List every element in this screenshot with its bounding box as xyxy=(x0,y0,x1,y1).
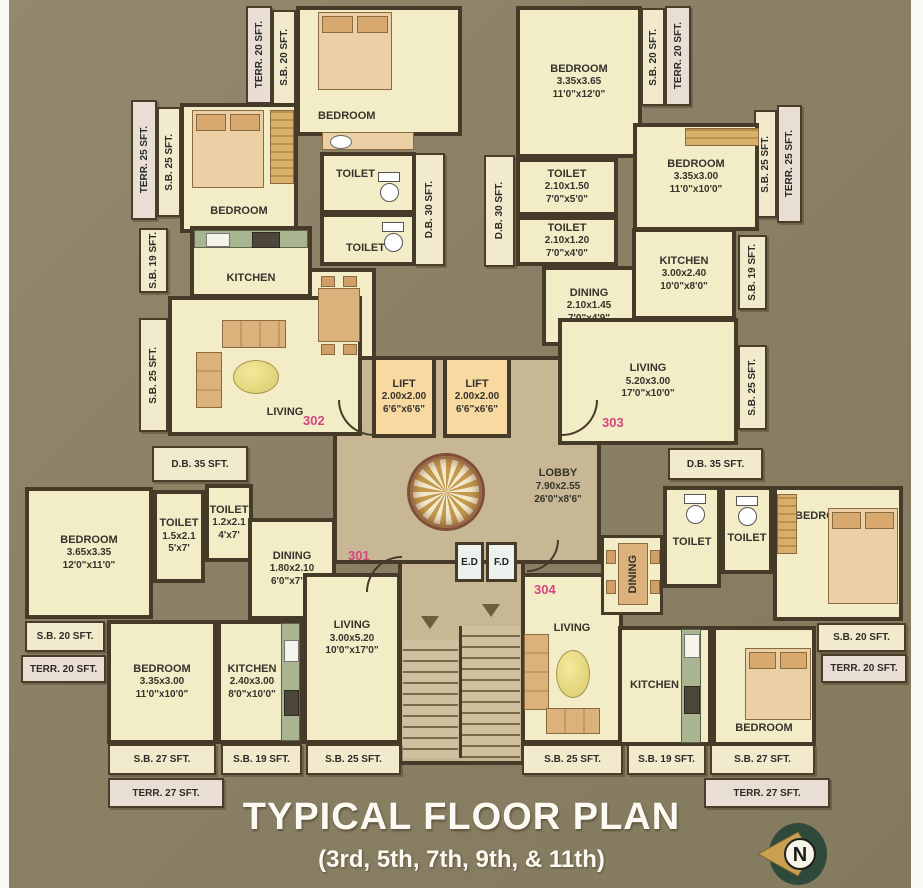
chair-icon xyxy=(606,550,616,564)
room-label: TOILET xyxy=(210,504,249,518)
room-303-toilet-2: TOILET 2.10x1.20 7'0"x4'0" xyxy=(516,216,618,266)
left-frame-edge xyxy=(0,0,9,888)
lift-dim-m: 2.00x2.00 xyxy=(455,391,500,404)
room-dim-ft: 11'0"x10'0" xyxy=(133,689,190,702)
room-dim-ft: 11'0"x10'0" xyxy=(667,184,724,197)
room-301-bedroom-1: BEDROOM 3.65x3.35 12'0"x11'0" xyxy=(25,487,153,619)
room-label: TOILET xyxy=(346,242,385,256)
room-dim-ft: 17'0"x10'0" xyxy=(621,388,674,401)
bed-icon xyxy=(828,508,898,604)
room-dim-m: 3.35x3.65 xyxy=(550,76,607,89)
room-label: LOBBY xyxy=(502,466,614,480)
balcony-strip: S.B. 19 SFT. xyxy=(627,744,706,775)
balcony-strip: S.B. 20 SFT. xyxy=(25,621,105,652)
chair-icon xyxy=(606,580,616,594)
sink-icon xyxy=(684,634,700,658)
pillow-icon xyxy=(322,16,353,33)
sofa-icon xyxy=(222,320,286,348)
duct-strip: D.B. 30 SFT. xyxy=(484,155,515,267)
duct-strip: D.B. 30 SFT. xyxy=(414,153,445,266)
room-dim-ft: 10'0"x8'0" xyxy=(660,281,709,294)
lift-dim-m: 2.00x2.00 xyxy=(382,391,427,404)
fire-duct: F.D xyxy=(486,542,517,582)
unit-number-302: 302 xyxy=(303,413,325,428)
lift-2: LIFT 2.00x2.00 6'6"x6'6" xyxy=(443,356,511,438)
room-label: BEDROOM xyxy=(667,158,724,172)
room-dim-ft: 7'0"x4'0" xyxy=(545,248,590,261)
sink-icon xyxy=(284,640,299,662)
coffee-table-icon xyxy=(556,650,590,698)
pillow-icon xyxy=(832,512,861,529)
room-label: KITCHEN xyxy=(630,679,679,693)
balcony-strip: S.B. 25 SFT. xyxy=(522,744,623,775)
chair-icon xyxy=(650,580,660,594)
sofa-icon xyxy=(546,708,600,734)
room-dim-m: 2.10x1.20 xyxy=(545,235,590,248)
balcony-strip: S.B. 20 SFT. xyxy=(272,10,296,105)
pillow-icon xyxy=(196,114,226,131)
balcony-strip: S.B. 19 SFT. xyxy=(221,744,302,775)
room-dim-m: 3.65x3.35 xyxy=(60,547,117,560)
room-dim-m: 2.40x3.00 xyxy=(228,676,277,689)
room-label: BEDROOM xyxy=(133,663,190,677)
balcony-strip: S.B. 25 SFT. xyxy=(139,318,168,432)
chair-icon xyxy=(343,344,357,355)
stove-icon xyxy=(284,690,299,716)
chair-icon xyxy=(650,550,660,564)
chair-icon xyxy=(321,276,335,287)
balcony-strip: S.B. 27 SFT. xyxy=(710,744,815,775)
room-301-bedroom-2: BEDROOM 3.35x3.00 11'0"x10'0" xyxy=(107,620,217,744)
balcony-strip: S.B. 19 SFT. xyxy=(139,228,168,293)
room-dim-m: 2.10x1.45 xyxy=(567,300,612,313)
balcony-strip: S.B. 20 SFT. xyxy=(817,623,906,652)
room-label: TOILET xyxy=(728,532,767,546)
room-303-toilet-1: TOILET 2.10x1.50 7'0"x5'0" xyxy=(516,158,618,216)
lift-dim-ft: 6'6"x6'6" xyxy=(382,404,427,417)
room-label: TOILET xyxy=(545,168,590,182)
room-label: TOILET xyxy=(160,517,199,531)
coffee-table-icon xyxy=(233,360,279,394)
unit-number-304: 304 xyxy=(534,582,556,597)
room-label: KITCHEN xyxy=(660,255,709,269)
room-label: BEDROOM xyxy=(735,722,792,736)
stairs-divider xyxy=(459,626,462,758)
room-label: LIVING xyxy=(554,622,591,636)
toilet-wc-icon xyxy=(378,172,400,202)
room-label: KITCHEN xyxy=(227,272,276,286)
room-301-toilet-2: TOILET 1.2x2.1 4'x7' xyxy=(205,484,253,562)
balcony-strip: S.B. 27 SFT. xyxy=(108,744,216,775)
room-303-bedroom-1: BEDROOM 3.35x3.65 11'0"x12'0" xyxy=(516,6,642,158)
room-dim-ft: 8'0"x10'0" xyxy=(228,689,277,702)
room-dim-m: 1.5x2.1 xyxy=(160,531,199,544)
room-dim-m: 3.35x3.00 xyxy=(133,676,190,689)
wardrobe-icon xyxy=(777,494,797,554)
room-label: LIVING xyxy=(621,362,674,376)
balcony-strip: TERR. 20 SFT. xyxy=(246,6,272,104)
stove-icon xyxy=(684,686,700,714)
toilet-wc-icon xyxy=(382,222,404,252)
room-dim-m: 5.20x3.00 xyxy=(621,376,674,389)
pillow-icon xyxy=(865,512,894,529)
room-label: BEDROOM xyxy=(210,205,267,219)
room-dim-ft: 4'x7' xyxy=(210,530,249,543)
right-frame-edge xyxy=(911,0,923,888)
unit-number-301: 301 xyxy=(348,548,370,563)
sofa-icon xyxy=(196,352,222,408)
duct-strip: D.B. 35 SFT. xyxy=(668,448,763,480)
room-dim-ft: 12'0"x11'0" xyxy=(60,560,117,573)
room-dim-ft: 10'0"x17'0" xyxy=(325,645,378,658)
room-label: BEDROOM xyxy=(60,534,117,548)
electrical-duct: E.D xyxy=(455,542,484,582)
room-label: KITCHEN xyxy=(228,663,277,677)
room-label: TOILET xyxy=(545,222,590,236)
room-dim-ft: 7'0"x5'0" xyxy=(545,194,590,207)
pillow-icon xyxy=(780,652,807,669)
room-301-toilet-1: TOILET 1.5x2.1 5'x7' xyxy=(153,490,205,583)
room-label: BEDROOM xyxy=(550,63,607,77)
stairs-down-arrow xyxy=(421,616,439,629)
balcony-strip: S.B. 20 SFT. xyxy=(641,8,665,106)
pillow-icon xyxy=(357,16,388,33)
floor-plan: TERR. 20 SFT. S.B. 20 SFT. TERR. 25 SFT.… xyxy=(0,0,923,888)
room-label: BEDROOM xyxy=(318,110,375,124)
balcony-strip: TERR. 20 SFT. xyxy=(665,6,691,106)
room-303-kitchen: KITCHEN 3.00x2.40 10'0"x8'0" xyxy=(632,228,736,320)
room-dim-ft: 26'0"x8'6" xyxy=(502,493,614,506)
north-compass-icon: N xyxy=(754,820,830,888)
pillow-icon xyxy=(230,114,260,131)
unit-number-303: 303 xyxy=(602,415,624,430)
sink-icon xyxy=(206,233,230,247)
room-dim-m: 7.90x2.55 xyxy=(502,480,614,493)
stairs-flight-left xyxy=(403,640,458,758)
room-label: LIVING xyxy=(325,619,378,633)
room-dim-m: 1.2x2.1 xyxy=(210,517,249,530)
pillow-icon xyxy=(749,652,776,669)
room-302-toilet-1: TOILET xyxy=(320,152,416,214)
bed-icon xyxy=(192,110,264,188)
door-arc-304 xyxy=(527,540,559,572)
duct-strip: D.B. 35 SFT. xyxy=(152,446,248,482)
room-label: DINING xyxy=(270,550,315,564)
dining-table-icon xyxy=(318,288,360,342)
balcony-strip: S.B. 25 SFT. xyxy=(157,107,181,217)
compass-rose-icon xyxy=(410,456,482,528)
lobby-label: LOBBY 7.90x2.55 26'0"x8'6" xyxy=(502,466,614,506)
room-dim-m: 3.00x2.40 xyxy=(660,268,709,281)
balcony-strip: S.B. 19 SFT. xyxy=(738,235,767,310)
stairs-flight-right xyxy=(462,626,520,758)
balcony-strip: S.B. 25 SFT. xyxy=(738,345,767,430)
stove-icon xyxy=(252,232,280,248)
stairs-down-arrow xyxy=(482,604,500,617)
wardrobe-icon xyxy=(270,110,294,184)
balcony-strip: TERR. 25 SFT. xyxy=(777,105,802,223)
room-301-living: LIVING 3.00x5.20 10'0"x17'0" xyxy=(303,573,401,744)
balcony-strip: TERR. 20 SFT. xyxy=(821,654,907,683)
wardrobe-icon xyxy=(685,128,759,146)
room-dim-m: 3.00x5.20 xyxy=(325,633,378,646)
room-label: LIVING xyxy=(267,406,304,420)
room-dim-ft: 5'x7' xyxy=(160,543,199,556)
room-dim-m: 3.35x3.00 xyxy=(667,171,724,184)
room-dim-m: 2.10x1.50 xyxy=(545,181,590,194)
sofa-icon xyxy=(524,634,549,710)
room-label: TOILET xyxy=(336,168,375,182)
bed-icon xyxy=(745,648,811,720)
balcony-strip: TERR. 25 SFT. xyxy=(131,100,157,220)
room-dim-ft: 11'0"x12'0" xyxy=(550,89,607,102)
room-label: DINING xyxy=(567,287,612,301)
lift-dim-ft: 6'6"x6'6" xyxy=(455,404,500,417)
room-label: TOILET xyxy=(673,536,712,550)
lift-1: LIFT 2.00x2.00 6'6"x6'6" xyxy=(372,356,436,438)
chair-icon xyxy=(321,344,335,355)
balcony-strip: S.B. 25 SFT. xyxy=(306,744,401,775)
dining-table-icon: DINING xyxy=(618,543,648,605)
toilet-wc-icon xyxy=(736,496,758,526)
north-letter: N xyxy=(793,844,807,866)
chair-icon xyxy=(343,276,357,287)
balcony-strip: TERR. 20 SFT. xyxy=(21,655,106,683)
toilet-wc-icon xyxy=(684,494,706,524)
room-label: DINING xyxy=(627,555,639,594)
lift-label: LIFT xyxy=(382,378,427,392)
washbasin-icon xyxy=(330,135,352,149)
lift-label: LIFT xyxy=(455,378,500,392)
bed-icon xyxy=(318,12,392,90)
